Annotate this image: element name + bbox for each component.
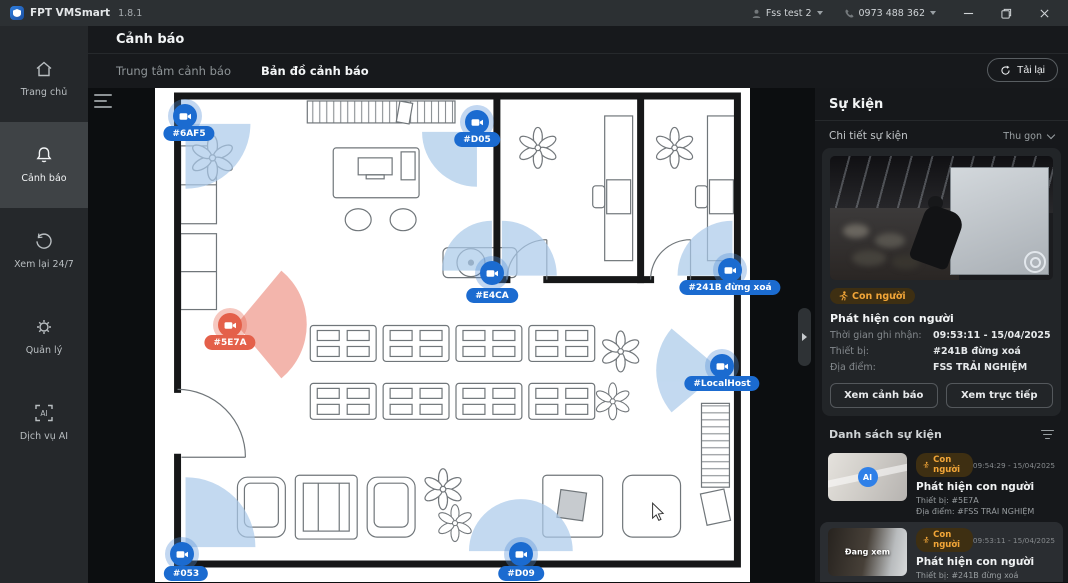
home-icon — [34, 59, 54, 79]
gear-icon — [34, 317, 54, 337]
svg-text:AI: AI — [40, 409, 47, 418]
app-logo-icon — [10, 6, 24, 20]
event-location-value: FSS TRẢI NGHIỆM — [933, 362, 1027, 373]
camera-label-6af5[interactable]: #6AF5 — [163, 126, 214, 141]
camera-marker-localhost[interactable] — [710, 354, 734, 378]
filter-icon[interactable] — [1041, 430, 1054, 440]
event-thumbnail: AI — [828, 453, 907, 501]
camera-icon — [515, 549, 528, 560]
event-snapshot — [830, 156, 1053, 280]
titlebar: FPT VMSmart 1.8.1 Fss test 2 0973 488 36… — [0, 0, 1068, 26]
collapse-toggle[interactable]: Thu gọn — [1003, 131, 1054, 142]
tab-row: Trung tâm cảnh báo Bản đồ cảnh báo Tải l… — [88, 54, 1068, 88]
sidebar-item-manage[interactable]: Quản lý — [0, 294, 88, 380]
chevron-down-icon — [817, 11, 823, 15]
tab-alert-center[interactable]: Trung tâm cảnh báo — [116, 64, 231, 78]
camera-marker-d05[interactable] — [465, 110, 489, 134]
replay-icon — [34, 231, 54, 251]
events-panel: Sự kiện Chi tiết sự kiện Thu gọn — [815, 88, 1068, 582]
person-running-icon — [839, 291, 848, 301]
sidebar-item-playback[interactable]: Xem lại 24/7 — [0, 208, 88, 294]
camera-marker-6af5[interactable] — [173, 104, 197, 128]
event-time-value: 09:53:11 - 15/04/2025 — [933, 330, 1051, 341]
camera-icon — [716, 361, 729, 372]
camera-label-241b[interactable]: #241B đừng xoá — [679, 280, 780, 295]
event-name: Phát hiện con người — [830, 312, 1053, 325]
event-type-badge: Con người — [830, 288, 915, 304]
event-type-badge: Con người — [916, 453, 973, 477]
event-type-badge: Con người — [916, 528, 973, 552]
view-live-button[interactable]: Xem trực tiếp — [946, 383, 1054, 408]
event-device-value: #241B đừng xoá — [933, 346, 1021, 357]
camera-marker-053[interactable] — [170, 542, 194, 566]
camera-icon — [471, 117, 484, 128]
camera-label-localhost[interactable]: #LocalHost — [684, 376, 759, 391]
bell-icon — [34, 145, 54, 165]
event-thumbnail: Đang xem — [828, 528, 907, 576]
person-running-icon — [923, 460, 929, 470]
reload-button[interactable]: Tải lại — [987, 58, 1058, 82]
user-icon — [752, 9, 761, 18]
events-panel-title: Sự kiện — [815, 88, 1068, 121]
page-title-row: Cảnh báo — [88, 26, 1068, 54]
refresh-icon — [1000, 65, 1011, 76]
arrow-right-icon — [802, 333, 807, 341]
app-title: FPT VMSmart — [30, 7, 110, 19]
camera-icon — [179, 111, 192, 122]
event-location-row: Địa điểm: FSS TRẢI NGHIỆM — [830, 362, 1053, 373]
restore-button[interactable] — [992, 3, 1020, 23]
account-name: Fss test 2 — [766, 8, 812, 19]
event-timestamp: 09:53:11 - 15/04/2025 — [973, 536, 1055, 545]
event-detail-header: Chi tiết sự kiện — [829, 130, 908, 142]
ai-badge: AI — [858, 467, 878, 487]
sidebar-item-alerts[interactable]: Cảnh báo — [0, 122, 88, 208]
content: #6AF5 #D05 #E4CA #241B đừng xoá #5E7A — [88, 88, 1068, 582]
event-list-item-selected[interactable]: Đang xem Con người 09:53:11 - 15/ — [820, 522, 1063, 582]
event-list-item[interactable]: AI Con người 09:54:29 - 15/04/202 — [820, 447, 1063, 522]
main-area: Cảnh báo Trung tâm cảnh báo Bản đồ cảnh … — [88, 26, 1068, 583]
event-detail-card: Con người Phát hiện con người Thời gian … — [822, 148, 1061, 416]
camera-label-d09[interactable]: #D09 — [498, 566, 544, 581]
panel-collapse-handle[interactable] — [798, 308, 811, 366]
account-dropdown[interactable]: Fss test 2 — [744, 6, 831, 21]
person-running-icon — [923, 535, 929, 545]
event-device-row: Thiết bị: #241B đừng xoá — [830, 346, 1053, 357]
phone-number: 0973 488 362 — [859, 8, 925, 19]
camera-marker-d09[interactable] — [509, 542, 533, 566]
camera-label-5e7a[interactable]: #5E7A — [204, 335, 255, 350]
camera-icon — [724, 265, 737, 276]
event-location: Địa điểm: #FSS TRẢI NGHIỆM — [916, 507, 1055, 516]
camera-label-e4ca[interactable]: #E4CA — [466, 288, 518, 303]
view-alert-button[interactable]: Xem cảnh báo — [830, 383, 938, 408]
sidebar: Trang chủ Cảnh báo Xem lại 24/7 Quản lý … — [0, 26, 88, 583]
ptz-control-icon — [1024, 251, 1046, 273]
tab-alert-map[interactable]: Bản đồ cảnh báo — [261, 64, 369, 78]
phone-icon — [845, 9, 854, 18]
event-device: Thiết bị: #241B đừng xoá — [916, 571, 1055, 580]
ai-icon: AI — [34, 403, 54, 423]
camera-label-d05[interactable]: #D05 — [454, 132, 500, 147]
camera-marker-e4ca[interactable] — [480, 261, 504, 285]
minimize-button[interactable] — [954, 3, 982, 23]
phone-dropdown[interactable]: 0973 488 362 — [837, 6, 944, 21]
event-list-header: Danh sách sự kiện — [829, 428, 942, 441]
app-version: 1.8.1 — [118, 8, 142, 19]
sidebar-item-home[interactable]: Trang chủ — [0, 36, 88, 122]
event-device: Thiết bị: #5E7A — [916, 496, 1055, 505]
camera-icon — [176, 549, 189, 560]
page-title: Cảnh báo — [116, 32, 184, 47]
camera-marker-5e7a-alert[interactable] — [218, 313, 242, 337]
sidebar-item-ai-services[interactable]: AI Dịch vụ AI — [0, 380, 88, 466]
camera-icon — [486, 268, 499, 279]
now-viewing-overlay: Đang xem — [845, 548, 890, 557]
event-time-row: Thời gian ghi nhận: 09:53:11 - 15/04/202… — [830, 330, 1053, 341]
alert-map: #6AF5 #D05 #E4CA #241B đừng xoá #5E7A — [155, 88, 750, 582]
camera-marker-241b[interactable] — [718, 258, 742, 282]
camera-icon — [224, 320, 237, 331]
close-button[interactable] — [1030, 3, 1058, 23]
chevron-down-icon — [930, 11, 936, 15]
event-timestamp: 09:54:29 - 15/04/2025 — [973, 461, 1055, 470]
chevron-down-icon — [1047, 130, 1055, 138]
camera-label-053[interactable]: #053 — [164, 566, 208, 581]
menu-toggle-icon[interactable] — [94, 94, 112, 108]
